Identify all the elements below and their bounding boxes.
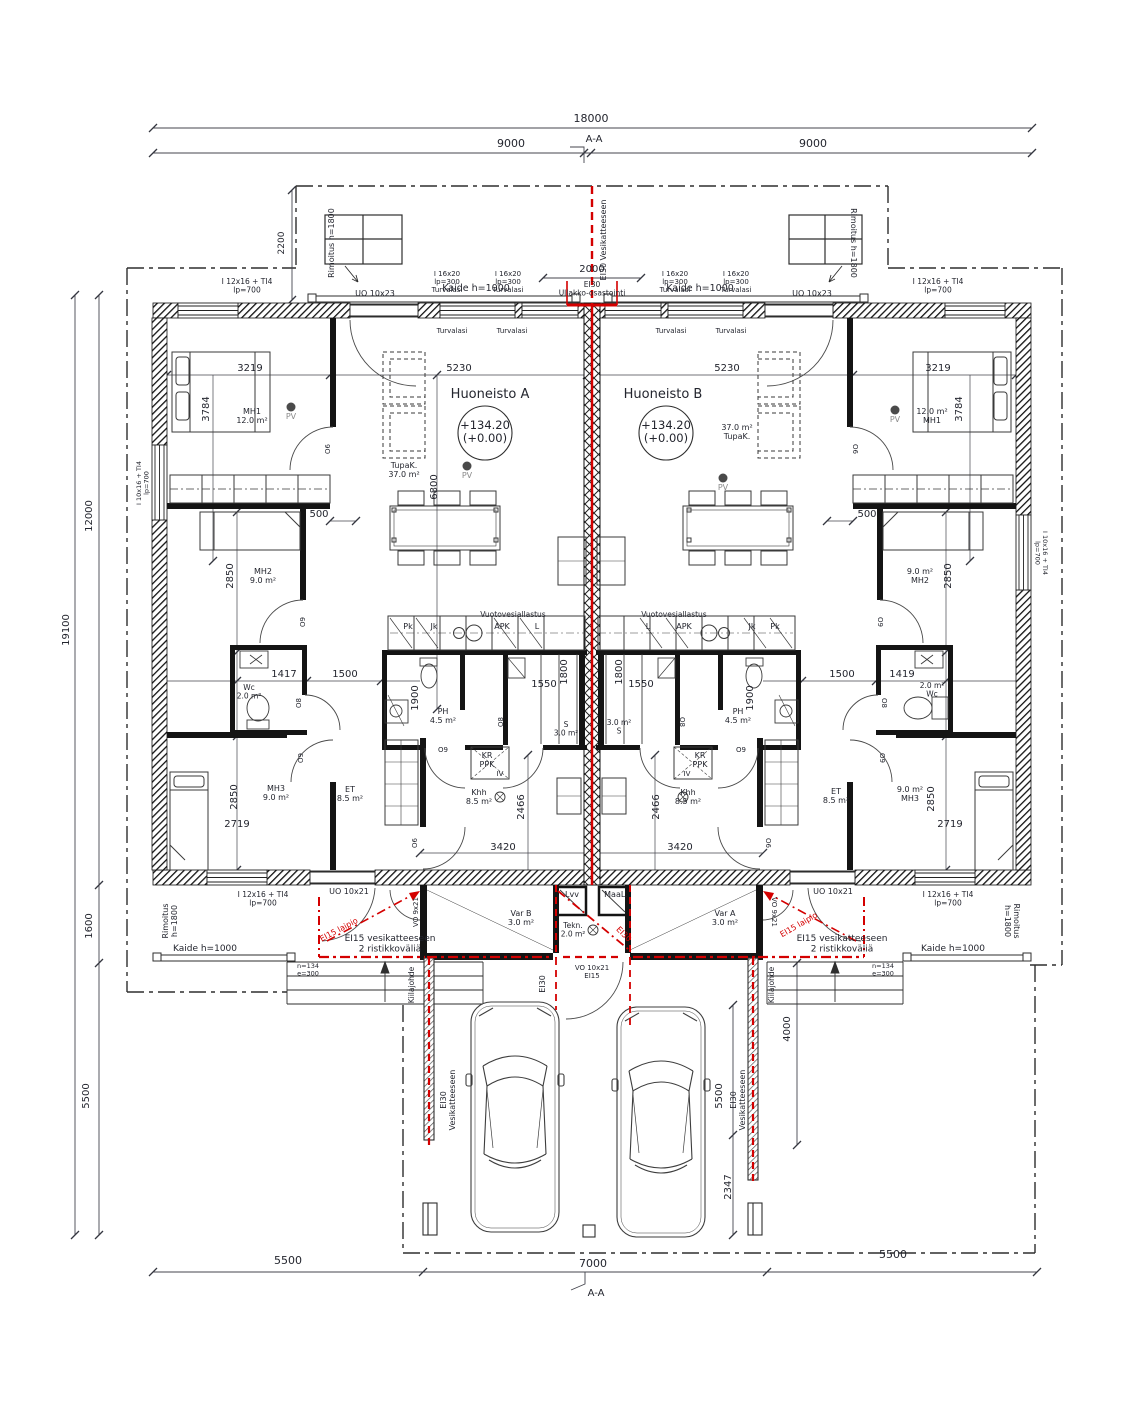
label-vuotovesiallastus-a: Vuotovesiallastus	[480, 610, 545, 619]
door-label-vo9x21-left: VO 9x21	[412, 897, 420, 927]
label-ei30-ullakko: EI30Ullakko-osastointi	[559, 280, 626, 298]
door-label-uo10x23-left: UO 10x23	[355, 289, 395, 298]
room-mh3-a: MH39.0 m²	[263, 784, 289, 802]
dim-2719-b: 2719	[937, 819, 962, 830]
door-tag-o9-mh3-a: O9	[297, 753, 305, 763]
label-rimoitus-bottom-right: Rimoitush=1800	[1003, 903, 1021, 938]
door-tag-o9-mh2-b: O9	[876, 617, 884, 627]
door-tag-o6-a: O6	[324, 443, 332, 454]
label-kaide-bottom-left: Kaide h=1000	[173, 944, 237, 954]
cars	[466, 1002, 710, 1237]
dim-1500-b: 1500	[829, 669, 854, 680]
closet-kr-ppk-b: KRPPK	[693, 751, 709, 769]
door-tag-o9-mh3-b: O9	[878, 753, 886, 763]
room-tupak-a: TupaK.37.0 m²	[388, 461, 419, 479]
window-top-1	[178, 303, 238, 318]
level-mark-a: +134.20(+0.00)	[460, 418, 510, 445]
dim-1500-a: 1500	[332, 669, 357, 680]
door-label-uo10x21-left: UO 10x21	[329, 887, 369, 896]
dim-2466-a: 2466	[516, 794, 527, 819]
appliance-l-a: L	[535, 622, 540, 631]
pv-label-a2: PV	[286, 412, 297, 421]
win-label-i10x16-left: I 10x16 + TI4lp=700	[135, 461, 150, 505]
dim-2200: 2200	[277, 231, 287, 254]
dimension-ticks	[71, 124, 1041, 1276]
room-wc-b: 2.0 m²Wc	[920, 681, 945, 699]
closet-maal: MaaL.	[604, 890, 628, 899]
dim-1800-b: 1800	[614, 659, 625, 684]
dim-500-b: 500	[857, 509, 876, 520]
apartment-a-title: Huoneisto A	[451, 387, 530, 402]
appliance-pk-a: Pk	[403, 622, 413, 631]
dim-5500-bottom-right: 5500	[879, 1248, 907, 1261]
dim-3219-b: 3219	[925, 363, 950, 374]
dim-2850-mh3-a: 2850	[229, 784, 240, 809]
dim-5230-a: 5230	[446, 363, 471, 374]
car-right	[612, 1007, 710, 1237]
dim-2347: 2347	[723, 1174, 734, 1199]
car-left	[466, 1002, 564, 1232]
window-top-2	[440, 303, 515, 318]
door-tag-o6-entry-a: O6	[411, 837, 419, 848]
room-mh1-b: 12.0 m²MH1	[916, 407, 947, 425]
label-ei30-center-below: EI30	[538, 975, 547, 993]
dim-5500-bottom-left: 5500	[274, 1254, 302, 1267]
door-tag-o9-ph-b: O9	[736, 746, 746, 754]
dim-1800-a: 1800	[559, 659, 570, 684]
dim-5230-b: 5230	[714, 363, 739, 374]
dim-9000-left: 9000	[497, 137, 525, 150]
dim-3784-a: 3784	[201, 396, 212, 421]
door-tag-o8-wc-b: O8	[880, 698, 888, 708]
room-khh-a: Khh8.5 m²	[466, 788, 492, 806]
dim-1417: 1417	[271, 669, 296, 680]
dim-19100: 19100	[61, 614, 72, 646]
sill-turvalasi-4: Turvalasi	[715, 327, 747, 335]
section-marker-bottom: A-A	[588, 1288, 605, 1299]
pv-label-b1: PV	[890, 415, 901, 424]
label-kiilajohde-right: Kiilajohde	[767, 966, 776, 1003]
dim-2000: 2000	[579, 264, 604, 275]
closet-lvv: Lvv	[565, 890, 579, 899]
door-label-uo10x23-right: UO 10x23	[792, 289, 832, 298]
door-top-left	[350, 304, 418, 317]
room-mh2-a: MH29.0 m²	[250, 567, 276, 585]
door-tag-o9-mh2-a: O9	[299, 617, 307, 627]
dim-6800: 6800	[429, 474, 440, 499]
closet-kr-ppk-a: KRPPK	[480, 751, 496, 769]
dim-3420-a: 3420	[490, 842, 515, 853]
dim-1900-a: 1900	[410, 685, 421, 710]
dim-9000-right: 9000	[799, 137, 827, 150]
dim-1419: 1419	[889, 669, 914, 680]
room-mh2-b: 9.0 m²MH2	[907, 567, 933, 585]
win-label-i12x16-bottom-right: I 12x16 + TI4lp=700	[923, 890, 974, 908]
label-ei15-vesik-right: EI15 vesikatteeseen2 ristikkoväliä	[797, 934, 888, 954]
dim-2850-a: 2850	[225, 563, 236, 588]
room-var-a: Var A3.0 m²	[712, 909, 738, 927]
dim-3784-b: 3784	[954, 396, 965, 421]
dim-5500-carport: 5500	[714, 1083, 725, 1108]
pv-label-a1: PV	[462, 471, 473, 480]
door-label-uo10x21-right: UO 10x21	[813, 887, 853, 896]
room-tekn: Tekn.2.0 m²	[561, 921, 586, 939]
win-label-i12x16-top-left: I 12x16 + TI4lp=700	[222, 277, 273, 295]
appliance-pk-b: Pk	[770, 622, 780, 631]
room-et-a: ET8.5 m²	[337, 785, 363, 803]
label-rimoitus-top-right: Rimoitus h=1800	[849, 208, 858, 278]
label-rimoitus-bottom-left: Rimoitush=1800	[161, 903, 179, 938]
closet-iv-a: IV	[497, 770, 504, 778]
win-label-i10x16-right: I 10x16 + TI4lp=700	[1034, 531, 1049, 575]
dim-3219-a: 3219	[237, 363, 262, 374]
label-vuotovesiallastus-b: Vuotovesiallastus	[641, 610, 706, 619]
window-bottom-left	[207, 870, 267, 885]
window-top-6	[945, 303, 1005, 318]
dim-12000: 12000	[84, 500, 95, 532]
dim-500-a: 500	[309, 509, 328, 520]
level-mark-b: +134.20(+0.00)	[641, 418, 691, 445]
label-ei30-vesik-carport-right: EI30Vesikatteeseen	[729, 1070, 747, 1131]
door-tag-o6-entry-b: O6	[764, 838, 772, 849]
pv-label-b2: PV	[718, 483, 729, 492]
room-s-a: S3.0 m²	[554, 720, 579, 738]
door-bottom-right	[790, 871, 855, 884]
room-tupak-b: 37.0 m²TupaK.	[721, 423, 752, 441]
room-ph-a: PH4.5 m²	[430, 707, 456, 725]
dim-4000: 4000	[782, 1016, 793, 1041]
window-left-wall	[152, 445, 167, 520]
room-var-b: Var B3.0 m²	[508, 909, 534, 927]
door-tag-o8-wc-a: O8	[295, 698, 303, 708]
door-bottom-left	[310, 871, 375, 884]
floor-plan-page: 1800090009000A-AEI30 Vesikatteeseen20002…	[0, 0, 1128, 1410]
door-tag-o8-s-a: O8	[497, 717, 505, 727]
apartment-b-title: Huoneisto B	[624, 387, 703, 402]
door-tag-o6-b: O6	[851, 444, 859, 455]
dim-2466-b: 2466	[651, 794, 662, 819]
door-tag-o8-s-b: O8	[678, 717, 686, 727]
door-tag-o9-ph-a: O9	[438, 746, 448, 754]
door-label-vo10x21-center: VO 10x21EI15	[575, 964, 609, 980]
sill-turvalasi-1: Turvalasi	[436, 327, 468, 335]
dim-1550-b: 1550	[628, 679, 653, 690]
sill-turvalasi-3: Turvalasi	[655, 327, 687, 335]
appliance-apk-a: APK	[494, 622, 510, 631]
appliance-jk-a: Jk	[430, 622, 438, 631]
dim-1550-a: 1550	[531, 679, 556, 690]
room-mh3-b: 9.0 m²MH3	[897, 785, 923, 803]
room-et-b: ET8.5 m²	[823, 787, 849, 805]
win-label-i16x20-right-2: I 16x20lp=300Turvalasi	[720, 270, 752, 294]
window-top-5	[668, 303, 743, 318]
dim-2719-a: 2719	[224, 819, 249, 830]
appliance-l-b: L	[646, 622, 651, 631]
dim-1900-b: 1900	[745, 685, 756, 710]
label-kaide-bottom-right: Kaide h=1000	[921, 944, 985, 954]
win-label-i12x16-bottom-left: I 12x16 + TI4lp=700	[238, 890, 289, 908]
room-mh1-a: MH112.0 m²	[236, 407, 267, 425]
win-label-i12x16-top-right: I 12x16 + TI4lp=700	[913, 277, 964, 295]
door-top-right	[765, 304, 833, 317]
window-bottom-right	[915, 870, 975, 885]
room-s-b: 3.0 m²S	[607, 718, 632, 736]
label-n134-left: n=134e=300	[297, 962, 319, 977]
room-wc-a: Wc2.0 m²	[237, 683, 262, 701]
floor-plan-svg: 1800090009000A-AEI30 Vesikatteeseen20002…	[0, 0, 1128, 1410]
label-rimoitus-top-left: Rimoitus h=1800	[327, 208, 336, 278]
win-label-i16x20-left-1: I 16x20lp=300Turvalasi	[431, 270, 463, 294]
window-right-wall	[1016, 515, 1031, 590]
closet-iv-b: IV	[684, 770, 691, 778]
room-khh-b: Khh8.5 m²	[675, 788, 701, 806]
dim-5500-left: 5500	[81, 1083, 92, 1108]
label-kiilajohde-left: Kiilajohde	[407, 966, 416, 1003]
sill-turvalasi-2: Turvalasi	[496, 327, 528, 335]
carport	[423, 958, 762, 1237]
dim-18000: 18000	[574, 112, 609, 125]
win-label-i16x20-left-2: I 16x20lp=300Turvalasi	[492, 270, 524, 294]
dim-1600: 1600	[84, 913, 95, 938]
appliance-apk-b: APK	[676, 622, 692, 631]
dim-7000: 7000	[579, 1257, 607, 1270]
win-label-i16x20-right-1: I 16x20lp=300Turvalasi	[659, 270, 691, 294]
appliance-jk-b: Jk	[748, 622, 756, 631]
label-ei30-vesik-carport-left: EI30Vesikatteeseen	[439, 1070, 457, 1131]
label-n134-right: n=134e=300	[872, 962, 894, 977]
door-label-vo9x21-right: VO 9x21	[770, 897, 778, 927]
section-marker-top: A-A	[586, 134, 603, 145]
dim-2850-mh3-b: 2850	[926, 786, 937, 811]
dim-2850-b: 2850	[943, 563, 954, 588]
dim-3420-b: 3420	[667, 842, 692, 853]
